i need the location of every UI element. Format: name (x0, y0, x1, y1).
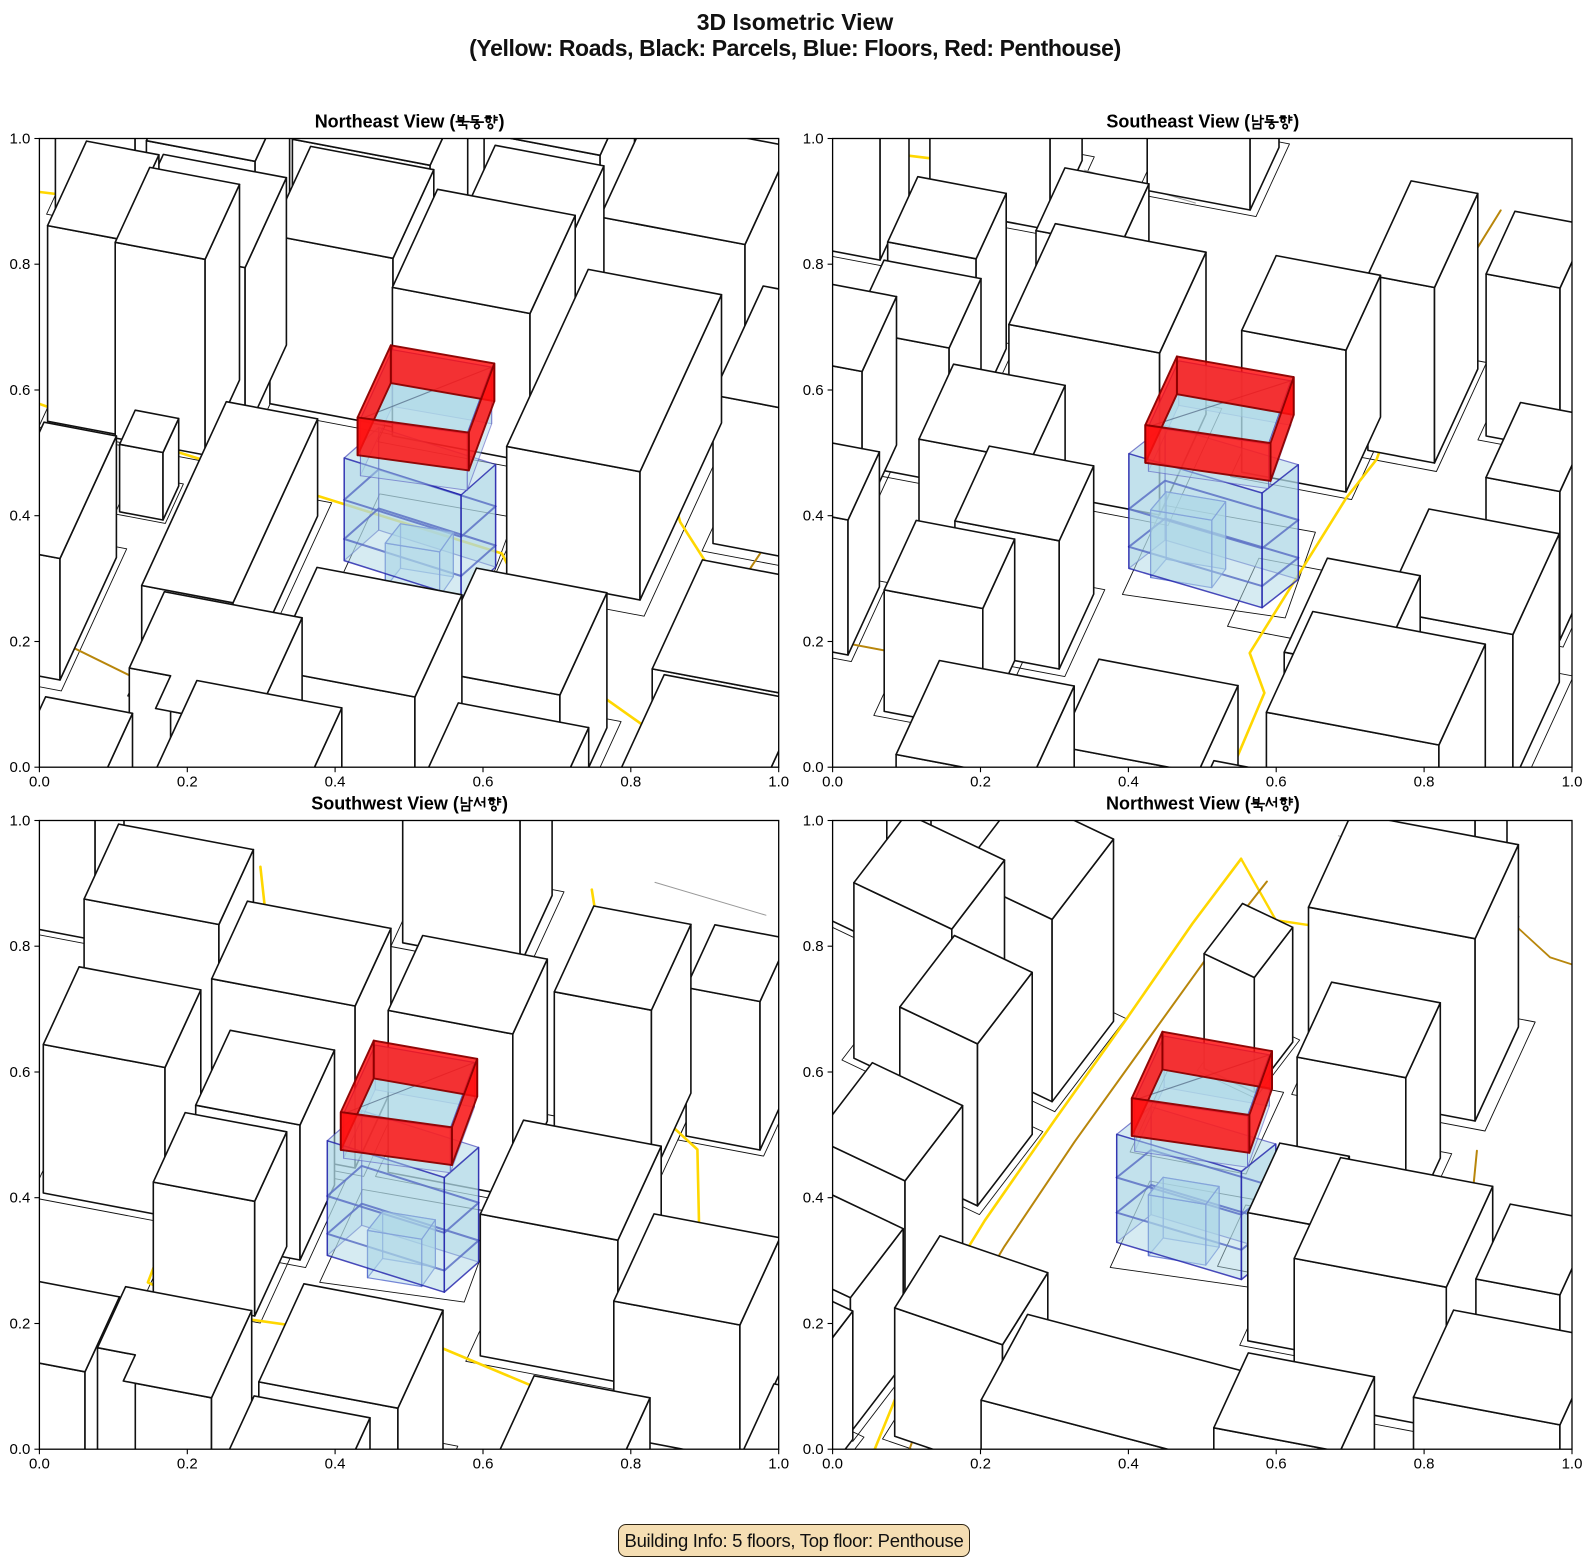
svg-text:0.4: 0.4 (803, 1190, 824, 1207)
svg-text:1.0: 1.0 (803, 131, 824, 148)
svg-text:0.2: 0.2 (803, 1316, 824, 1333)
svg-text:Southwest View (: Southwest View ( (311, 794, 459, 814)
svg-text:0.8: 0.8 (10, 938, 31, 955)
svg-text:Southeast View (: Southeast View ( (1106, 112, 1250, 132)
svg-text:0.2: 0.2 (970, 1456, 991, 1473)
svg-text:0.0: 0.0 (29, 774, 50, 791)
svg-text:Northwest View (: Northwest View ( (1106, 794, 1251, 814)
svg-text:): ) (499, 112, 505, 132)
svg-text:0.0: 0.0 (10, 1441, 31, 1458)
svg-text:0.6: 0.6 (473, 1456, 494, 1473)
svg-text:0.4: 0.4 (325, 1456, 346, 1473)
svg-text:0.0: 0.0 (822, 1456, 843, 1473)
svg-text:0.6: 0.6 (803, 382, 824, 399)
svg-text:0.4: 0.4 (10, 508, 31, 525)
svg-text:): ) (1294, 794, 1300, 814)
svg-text:1.0: 1.0 (1562, 1456, 1583, 1473)
svg-text:1.0: 1.0 (803, 813, 824, 830)
svg-text:0.8: 0.8 (803, 256, 824, 273)
svg-text:0.6: 0.6 (803, 1064, 824, 1081)
svg-text:): ) (1293, 112, 1299, 132)
svg-text:0.2: 0.2 (803, 634, 824, 651)
svg-text:0.0: 0.0 (29, 1456, 50, 1473)
svg-text:0.8: 0.8 (803, 938, 824, 955)
svg-text:0.6: 0.6 (10, 1064, 31, 1081)
svg-text:1.0: 1.0 (768, 1456, 789, 1473)
svg-text:0.2: 0.2 (177, 1456, 198, 1473)
svg-text:0.0: 0.0 (803, 759, 824, 776)
svg-text:0.4: 0.4 (1118, 774, 1139, 791)
svg-text:0.0: 0.0 (803, 1441, 824, 1458)
svg-text:0.4: 0.4 (10, 1190, 31, 1207)
svg-text:0.4: 0.4 (803, 508, 824, 525)
svg-text:1.0: 1.0 (1562, 774, 1583, 791)
svg-text:0.8: 0.8 (1414, 1456, 1435, 1473)
svg-text:0.2: 0.2 (970, 774, 991, 791)
svg-text:0.2: 0.2 (177, 774, 198, 791)
svg-text:0.0: 0.0 (10, 759, 31, 776)
svg-text:0.6: 0.6 (10, 382, 31, 399)
svg-text:0.4: 0.4 (1118, 1456, 1139, 1473)
svg-text:0.8: 0.8 (620, 774, 641, 791)
svg-text:0.2: 0.2 (10, 1316, 31, 1333)
svg-text:1.0: 1.0 (10, 813, 31, 830)
svg-text:Northeast View (: Northeast View ( (315, 112, 456, 132)
svg-text:0.0: 0.0 (822, 774, 843, 791)
svg-text:): ) (502, 794, 508, 814)
svg-text:0.2: 0.2 (10, 634, 31, 651)
svg-text:0.8: 0.8 (620, 1456, 641, 1473)
svg-text:1.0: 1.0 (768, 774, 789, 791)
svg-text:1.0: 1.0 (10, 131, 31, 148)
svg-text:0.6: 0.6 (1266, 1456, 1287, 1473)
svg-text:0.6: 0.6 (1266, 774, 1287, 791)
svg-text:0.6: 0.6 (473, 774, 494, 791)
svg-text:0.4: 0.4 (325, 774, 346, 791)
svg-text:0.8: 0.8 (1414, 774, 1435, 791)
svg-text:0.8: 0.8 (10, 256, 31, 273)
